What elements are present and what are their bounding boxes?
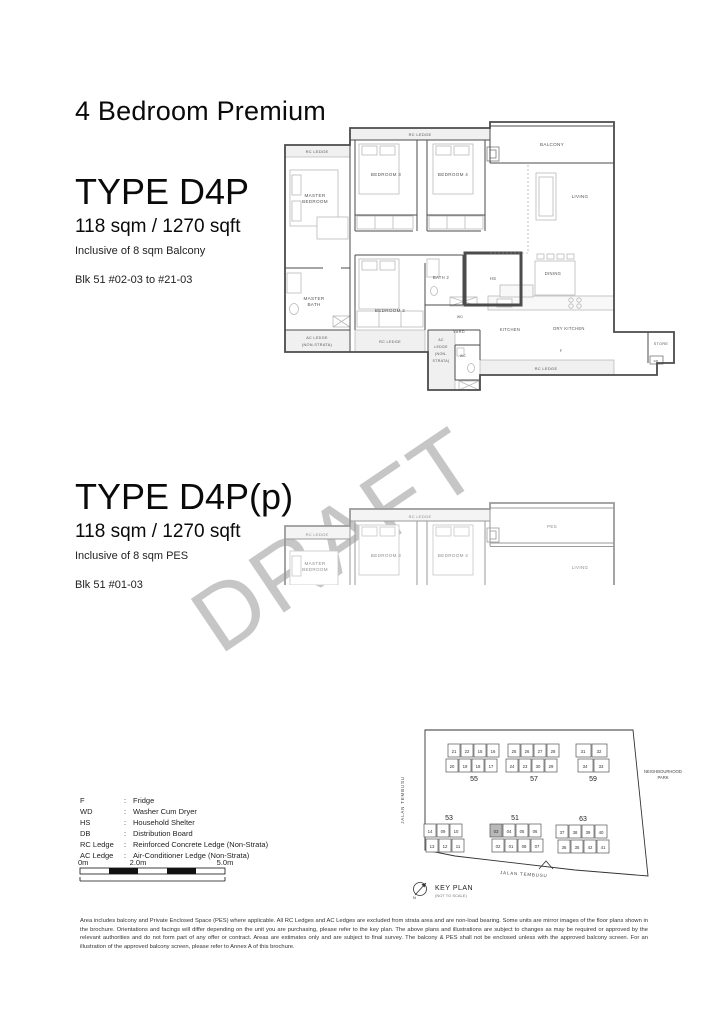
scale-bar: 0m 2.0m 5.0m [76, 857, 236, 892]
legend-row: WD:Washer Cum Dryer [80, 806, 268, 817]
label-wd: WD [457, 315, 464, 319]
road-label-bottom: JALAN TEMBUSU [500, 870, 548, 878]
block-number-51: 51 [511, 815, 519, 822]
label-store: STORE [654, 342, 669, 346]
label-bedroom2: BEDROOM 2 [375, 308, 405, 313]
svg-text:(NON-: (NON- [435, 352, 447, 356]
label-fridge: F [560, 349, 563, 353]
scale-label-5m: 5.0m [217, 858, 234, 867]
svg-text:(NON-STRATA): (NON-STRATA) [302, 343, 333, 347]
type-d4pp-name: TYPE D4P(p) [75, 477, 293, 517]
label-dry-kitchen: DRY KITCHEN [553, 326, 585, 331]
dining-table-icon [535, 261, 575, 295]
floor-plan-type-d4pp: RC LEDGE RC LEDGE PES MASTER BEDROOM BED… [283, 479, 685, 585]
bed-icon [433, 525, 473, 575]
svg-text:33: 33 [599, 764, 604, 769]
label-master-bath: MASTER [304, 296, 325, 301]
svg-text:28: 28 [551, 749, 556, 754]
svg-text:35: 35 [575, 845, 580, 850]
legend-row: HS:Household Shelter [80, 817, 268, 828]
svg-text:06: 06 [533, 829, 538, 834]
tv-console-icon [536, 173, 556, 220]
svg-text:18: 18 [476, 764, 481, 769]
svg-text:34: 34 [583, 764, 588, 769]
key-plan-svg: JALAN TEMBUSU JALAN TEMBUSU NEIGHBOURHOO… [395, 720, 705, 902]
svg-text:20: 20 [450, 764, 455, 769]
svg-text:13: 13 [430, 844, 435, 849]
ac-unit-box [487, 528, 499, 542]
svg-text:19: 19 [463, 764, 468, 769]
legend-row: F:Fridge [80, 795, 268, 806]
north-label: N [413, 895, 416, 900]
label-living: LIVING [572, 565, 589, 570]
svg-text:15: 15 [478, 749, 483, 754]
label-rc-ledge: RC LEDGE [306, 149, 329, 154]
block-number-53: 53 [445, 815, 453, 822]
bed-icon [359, 259, 399, 309]
svg-text:09: 09 [441, 829, 446, 834]
svg-text:22: 22 [465, 749, 470, 754]
road-label-left: JALAN TEMBUSU [400, 776, 405, 824]
svg-text:10: 10 [454, 829, 459, 834]
bed-icon [359, 525, 399, 575]
label-kitchen: KITCHEN [500, 327, 520, 332]
key-plan: JALAN TEMBUSU JALAN TEMBUSU NEIGHBOURHOO… [395, 720, 705, 907]
label-bedroom4: BEDROOM 4 [438, 553, 468, 558]
label-bedroom3: BEDROOM 3 [371, 172, 401, 177]
svg-text:17: 17 [489, 764, 494, 769]
label-master-bedroom: MASTER [305, 193, 326, 198]
label-rc-ledge: RC LEDGE [306, 532, 329, 537]
disclaimer-text: Area includes balcony and Private Enclos… [80, 917, 648, 952]
type-d4p-name: TYPE D4P [75, 172, 249, 212]
label-db: DB [654, 359, 659, 363]
label-ac-ledge: AC LEDGE [306, 336, 328, 340]
type-d4pp-info: TYPE D4P(p) 118 sqm / 1270 sqft Inclusiv… [75, 477, 293, 591]
svg-text:21: 21 [452, 749, 457, 754]
label-ac-ledge-mid: AC [438, 338, 444, 342]
label-wc: WC [460, 354, 467, 358]
floor-plan-type-d4p: RC LEDGE RC LEDGE BALCONY MASTER BEDROOM… [283, 113, 685, 393]
svg-text:27: 27 [538, 749, 543, 754]
svg-text:04: 04 [507, 829, 512, 834]
svg-text:38: 38 [573, 830, 578, 835]
svg-text:14: 14 [428, 829, 433, 834]
svg-text:01: 01 [509, 844, 514, 849]
svg-text:42: 42 [588, 845, 593, 850]
svg-text:41: 41 [601, 845, 606, 850]
wardrobe-icon [317, 217, 348, 239]
label-rc-ledge: RC LEDGE [409, 132, 432, 137]
label-hs: HS [490, 276, 496, 281]
block-number-63: 63 [579, 816, 587, 823]
bed-icon [359, 144, 399, 194]
type-d4pp-blocks: Blk 51 #01-03 [75, 579, 293, 591]
brochure-page: 4 Bedroom Premium DRAFT TYPE D4P 118 sqm… [0, 0, 724, 1024]
svg-text:PARK: PARK [657, 775, 668, 780]
wardrobe-icon [357, 216, 413, 229]
svg-text:25: 25 [512, 749, 517, 754]
svg-text:16: 16 [491, 749, 496, 754]
svg-text:32: 32 [597, 749, 602, 754]
block-numbers: 55 57 59 53 51 63 [445, 776, 597, 823]
type-d4pp-inclusive: Inclusive of 8 sqm PES [75, 550, 293, 562]
label-rc-ledge: RC LEDGE [409, 514, 432, 519]
type-d4p-area: 118 sqm / 1270 sqft [75, 216, 249, 238]
label-master-bedroom: MASTER [305, 561, 326, 566]
floor-plan-d4p-svg: RC LEDGE RC LEDGE BALCONY MASTER BEDROOM… [283, 113, 685, 393]
label-living: LIVING [572, 194, 589, 199]
svg-text:37: 37 [560, 830, 565, 835]
svg-text:39: 39 [586, 830, 591, 835]
floor-plan-d4pp-svg: RC LEDGE RC LEDGE PES MASTER BEDROOM BED… [283, 479, 685, 585]
svg-text:29: 29 [549, 764, 554, 769]
label-bedroom3: BEDROOM 3 [371, 553, 401, 558]
road-arrow [539, 861, 553, 869]
svg-text:24: 24 [510, 764, 515, 769]
label-dining: DINING [545, 271, 561, 276]
svg-text:BEDROOM: BEDROOM [302, 567, 328, 572]
svg-text:40: 40 [599, 830, 604, 835]
key-plan-subtitle: (NOT TO SCALE) [435, 893, 467, 898]
svg-text:26: 26 [525, 749, 530, 754]
key-plan-title: KEY PLAN [435, 885, 473, 892]
scale-label-0m: 0m [78, 858, 88, 867]
svg-text:LEDGE: LEDGE [434, 345, 448, 349]
block-number-57: 57 [530, 776, 538, 783]
svg-text:05: 05 [520, 829, 525, 834]
legend: F:Fridge WD:Washer Cum Dryer HS:Househol… [80, 795, 268, 861]
park-label: NEIGHBOURHOOD [644, 769, 682, 774]
svg-text:11: 11 [456, 844, 461, 849]
key-plan-caption: N KEY PLAN (NOT TO SCALE) [413, 883, 473, 901]
svg-text:BEDROOM: BEDROOM [302, 199, 328, 204]
label-pes: PES [547, 524, 557, 529]
svg-text:02: 02 [496, 844, 501, 849]
unit-boxes [424, 744, 609, 853]
type-d4p-inclusive: Inclusive of 8 sqm Balcony [75, 245, 249, 257]
label-yard: YARD [453, 329, 465, 334]
svg-text:STRATA): STRATA) [433, 359, 450, 363]
svg-text:31: 31 [581, 749, 586, 754]
svg-text:12: 12 [443, 844, 448, 849]
type-d4p-blocks: Blk 51 #02-03 to #21-03 [75, 274, 249, 286]
svg-text:23: 23 [523, 764, 528, 769]
legend-row: DB:Distribution Board [80, 828, 268, 839]
wardrobe-icon [429, 216, 483, 229]
block-number-55: 55 [470, 776, 478, 783]
svg-text:03: 03 [494, 829, 499, 834]
svg-text:BATH: BATH [307, 302, 320, 307]
svg-text:30: 30 [536, 764, 541, 769]
svg-text:36: 36 [562, 845, 567, 850]
block-number-59: 59 [589, 776, 597, 783]
bed-icon [433, 144, 473, 194]
type-d4p-info: TYPE D4P 118 sqm / 1270 sqft Inclusive o… [75, 172, 249, 286]
label-bath2: BATH 2 [433, 275, 450, 280]
legend-row: RC Ledge:Reinforced Concrete Ledge (Non-… [80, 839, 268, 850]
north-arrow-icon [414, 883, 427, 896]
scale-label-2m: 2.0m [130, 858, 147, 867]
wardrobe-icon [357, 311, 423, 327]
type-d4pp-area: 118 sqm / 1270 sqft [75, 521, 293, 543]
label-bedroom4: BEDROOM 4 [438, 172, 468, 177]
ac-unit-box [487, 147, 499, 161]
svg-text:08: 08 [522, 844, 527, 849]
svg-text:07: 07 [535, 844, 540, 849]
scale-bar-graphic [80, 868, 225, 881]
label-balcony: BALCONY [540, 142, 564, 147]
label-rc-ledge: RC LEDGE [535, 366, 558, 371]
label-rc-ledge: RC LEDGE [379, 340, 401, 344]
